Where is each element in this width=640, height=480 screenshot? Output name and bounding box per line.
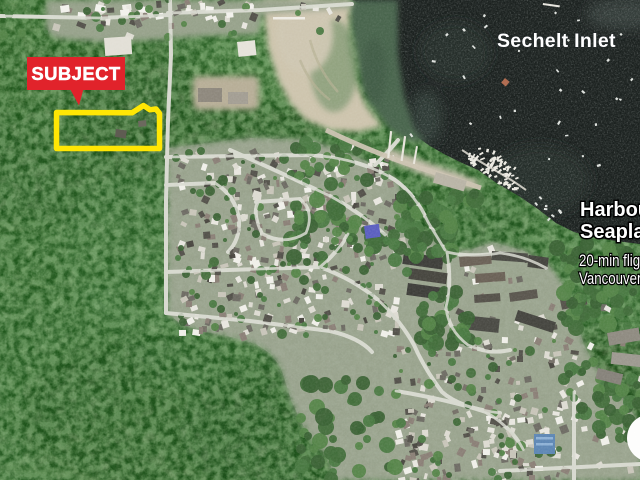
svg-text:20-min flight: 20-min flight (579, 252, 640, 271)
svg-text:Seapla: Seapla (580, 221, 640, 243)
svg-text:Harbou: Harbou (580, 199, 640, 221)
svg-text:SUBJECT: SUBJECT (31, 63, 120, 84)
svg-text:Sechelt Inlet: Sechelt Inlet (497, 30, 616, 52)
svg-text:Vancouver &: Vancouver & (579, 270, 640, 289)
